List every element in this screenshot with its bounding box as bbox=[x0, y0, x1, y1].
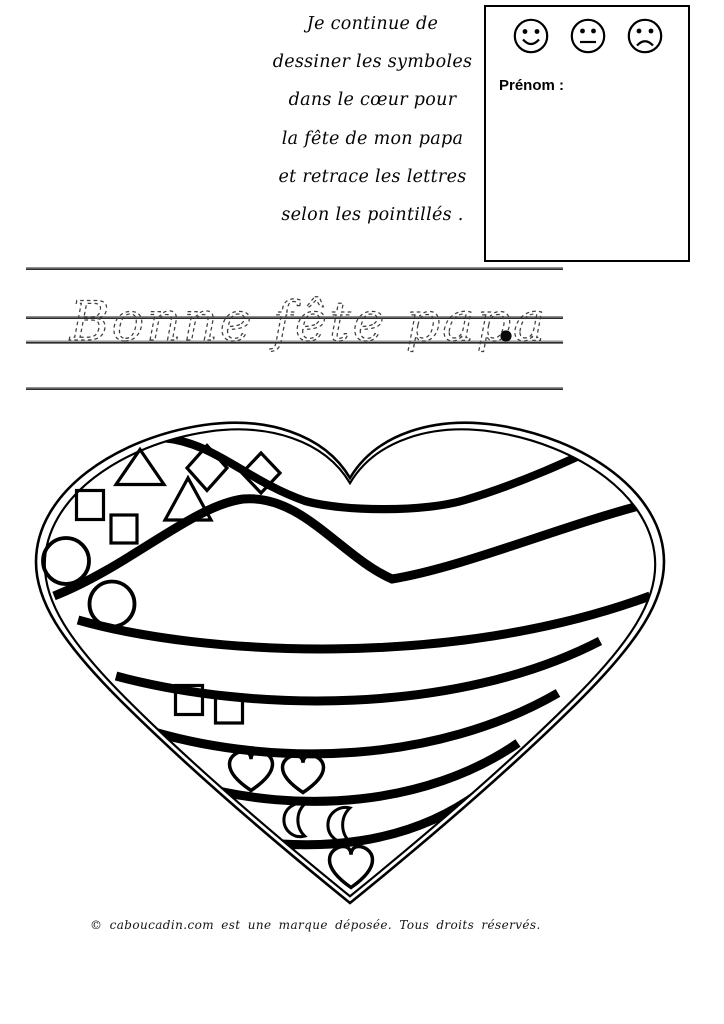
heart-stripes bbox=[52, 436, 654, 845]
heart-outline-inner bbox=[45, 429, 655, 896]
worksheet-page: { "colors": { "ink": "#000000", "rule_da… bbox=[0, 0, 724, 1024]
tracing-end-dot bbox=[500, 330, 511, 341]
heart-shape bbox=[230, 752, 273, 791]
heart-stripe bbox=[78, 596, 650, 649]
tracing-text[interactable]: Bonne fête papa bbox=[69, 290, 547, 353]
heart-shape bbox=[330, 847, 373, 888]
heart-outline-outer bbox=[36, 423, 664, 903]
worksheet-canvas: Bonne fête papa bbox=[0, 0, 724, 1024]
writing-rule bbox=[26, 388, 563, 390]
writing-rule bbox=[26, 268, 563, 270]
circle-shape bbox=[43, 538, 89, 584]
heart-stripe bbox=[52, 436, 622, 509]
heart-shape bbox=[283, 756, 324, 793]
heart-stripe bbox=[54, 499, 654, 596]
square-shape bbox=[77, 491, 104, 520]
heart-symbols bbox=[43, 446, 373, 888]
tracing-area[interactable]: Bonne fête papa bbox=[69, 290, 547, 353]
moon-shape bbox=[328, 807, 350, 842]
square-shape bbox=[111, 515, 137, 543]
circle-shape bbox=[90, 582, 135, 627]
heart-figure[interactable] bbox=[36, 423, 664, 903]
moon-shape bbox=[284, 803, 305, 836]
copyright-note: © caboucadin.com est une marque déposée.… bbox=[90, 918, 530, 932]
triangle-shape bbox=[116, 450, 164, 485]
